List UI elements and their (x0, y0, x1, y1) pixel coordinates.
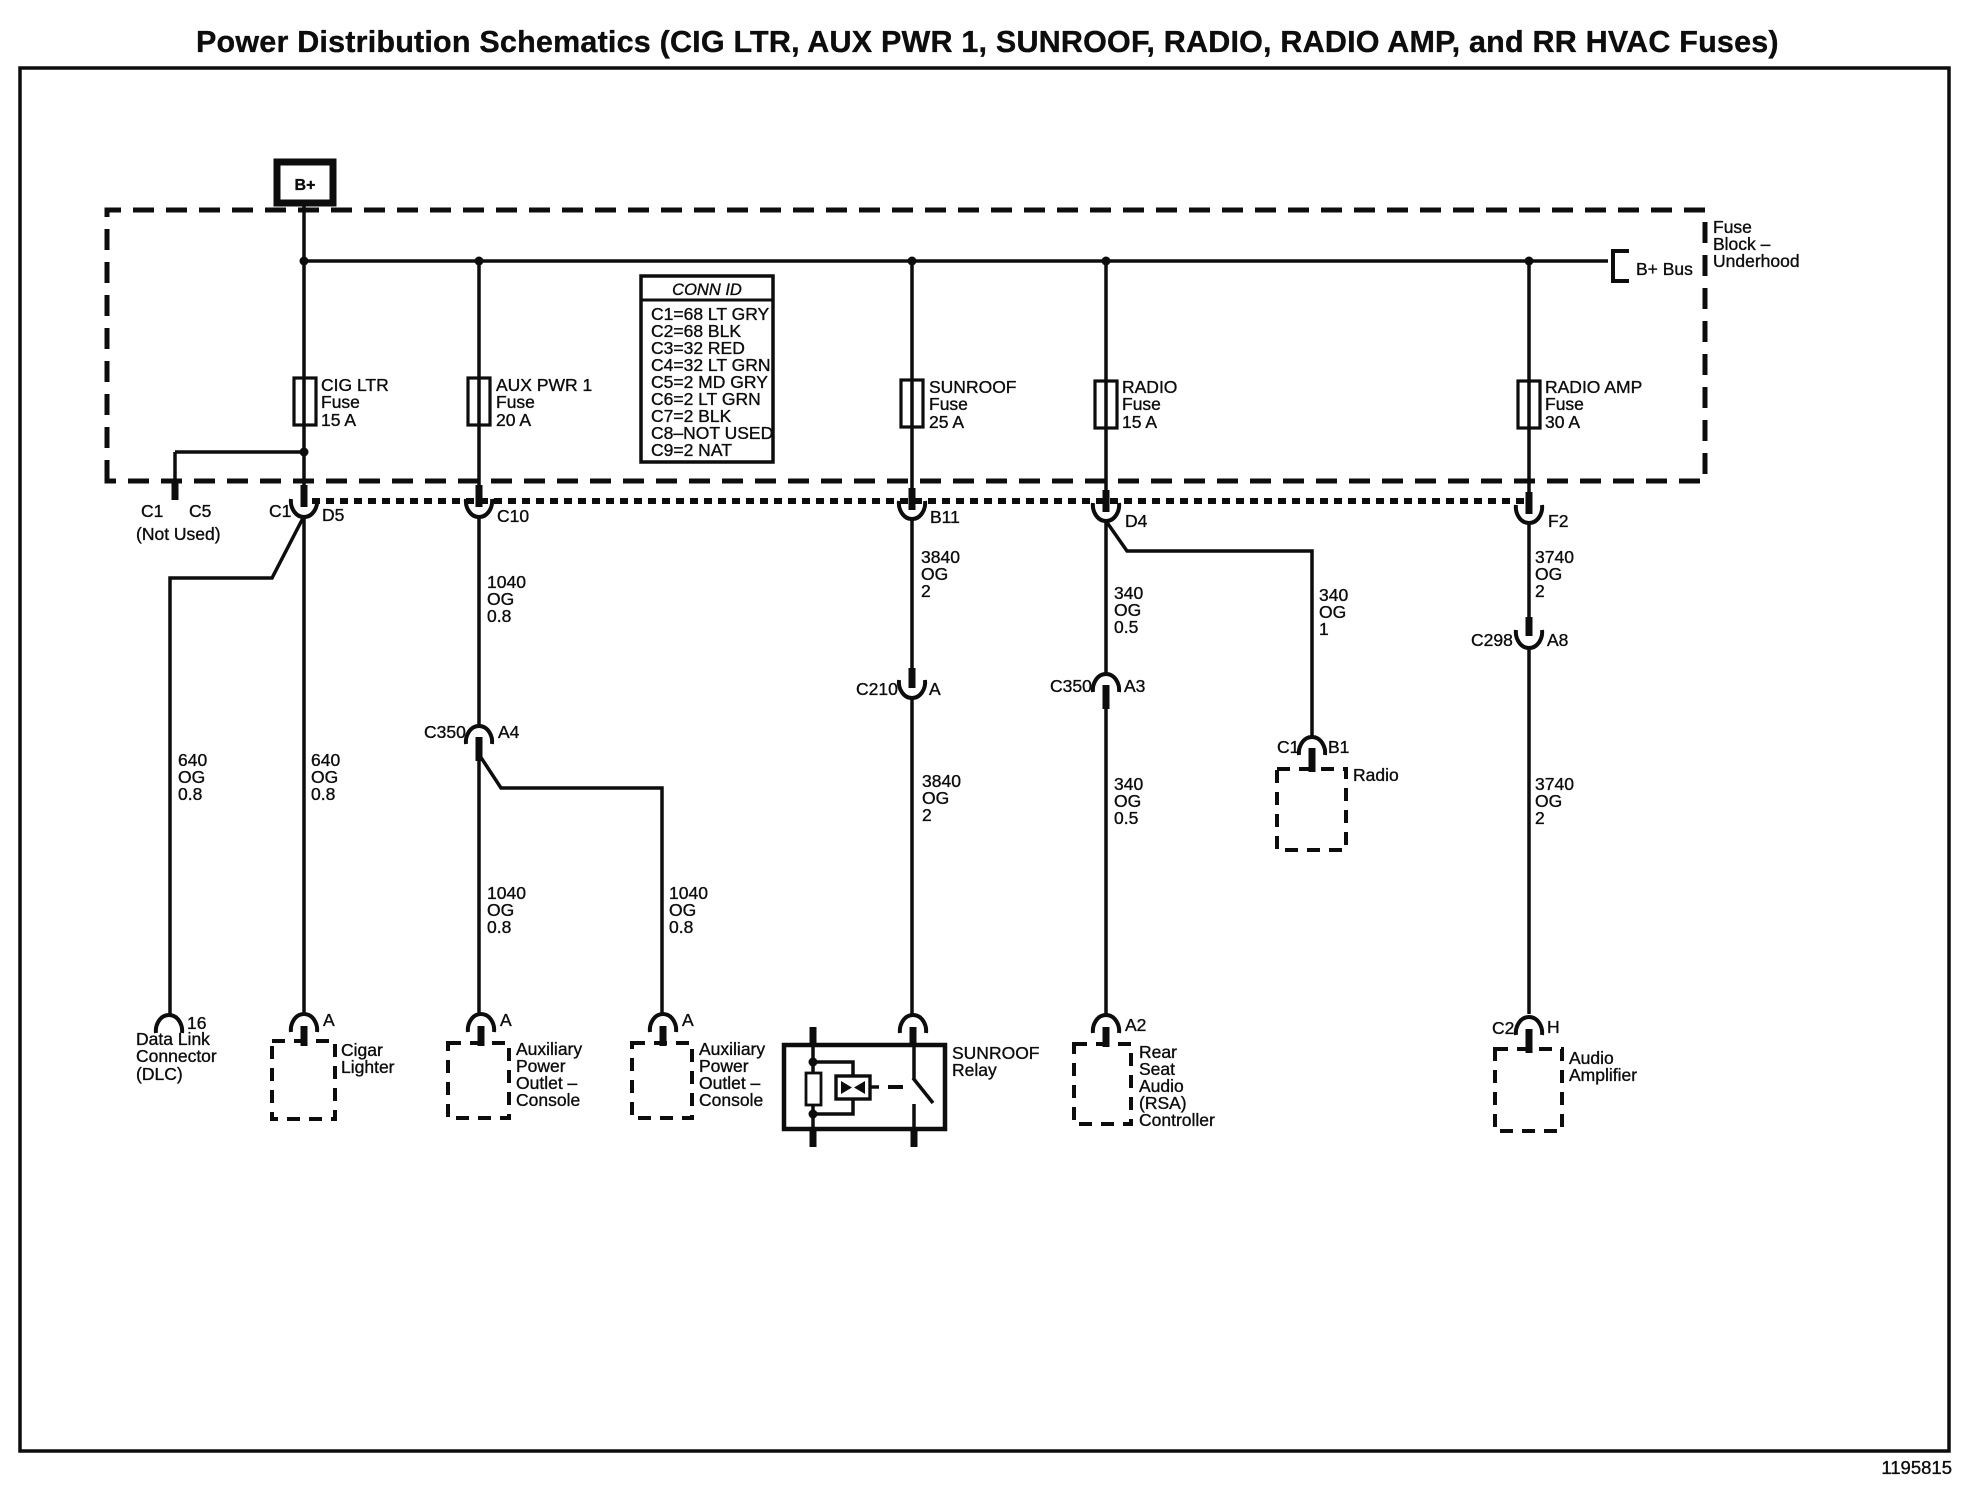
svg-text:1: 1 (1319, 619, 1329, 639)
svg-text:2: 2 (922, 805, 932, 825)
svg-text:B11: B11 (930, 507, 960, 527)
svg-text:A: A (682, 1010, 694, 1030)
svg-text:C298: C298 (1471, 630, 1513, 650)
svg-text:C1: C1 (1277, 737, 1299, 757)
svg-text:H: H (1547, 1017, 1560, 1037)
svg-text:Underhood: Underhood (1713, 251, 1800, 271)
svg-text:15 A: 15 A (1122, 412, 1157, 432)
svg-text:20 A: 20 A (496, 410, 531, 430)
svg-text:Console: Console (699, 1090, 763, 1110)
svg-text:0.8: 0.8 (669, 917, 693, 937)
svg-text:Fuse: Fuse (929, 394, 968, 414)
svg-text:F2: F2 (1548, 511, 1568, 531)
svg-text:D5: D5 (322, 505, 344, 525)
svg-text:A3: A3 (1124, 676, 1145, 696)
svg-text:A4: A4 (498, 722, 520, 742)
svg-text:25 A: 25 A (929, 412, 964, 432)
svg-text:1195815: 1195815 (1881, 1457, 1952, 1478)
svg-text:B1: B1 (1328, 737, 1349, 757)
svg-text:0.8: 0.8 (178, 784, 202, 804)
svg-text:A8: A8 (1547, 630, 1568, 650)
svg-text:(DLC): (DLC) (136, 1064, 183, 1084)
svg-text:0.5: 0.5 (1114, 808, 1138, 828)
svg-text:C2: C2 (1492, 1018, 1514, 1038)
svg-text:Fuse: Fuse (1122, 394, 1161, 414)
svg-text:15 A: 15 A (321, 410, 356, 430)
svg-text:Radio: Radio (1353, 765, 1399, 785)
svg-text:2: 2 (1535, 808, 1545, 828)
svg-text:A: A (929, 679, 941, 699)
svg-text:Controller: Controller (1139, 1110, 1215, 1130)
svg-text:A2: A2 (1125, 1015, 1146, 1035)
svg-text:C350: C350 (1050, 676, 1092, 696)
svg-text:Fuse: Fuse (496, 392, 535, 412)
svg-text:Power Distribution Schematics: Power Distribution Schematics (CIG LTR, … (196, 25, 1779, 59)
svg-text:30 A: 30 A (1545, 412, 1580, 432)
svg-text:0.8: 0.8 (311, 784, 335, 804)
svg-text:C210: C210 (856, 679, 898, 699)
svg-text:C10: C10 (497, 506, 529, 526)
svg-text:C5: C5 (189, 501, 211, 521)
svg-text:A: A (500, 1010, 512, 1030)
svg-text:2: 2 (1535, 581, 1545, 601)
svg-text:C9=2 NAT: C9=2 NAT (651, 440, 732, 460)
svg-text:C1: C1 (141, 501, 163, 521)
svg-text:Console: Console (516, 1090, 580, 1110)
svg-text:B+ Bus: B+ Bus (1636, 259, 1693, 279)
svg-text:C1: C1 (269, 501, 291, 521)
svg-text:Amplifier: Amplifier (1569, 1065, 1637, 1085)
svg-text:CONN ID: CONN ID (672, 281, 742, 299)
svg-text:Connector: Connector (136, 1046, 217, 1066)
svg-text:D4: D4 (1125, 511, 1148, 531)
svg-text:0.8: 0.8 (487, 917, 511, 937)
svg-text:0.5: 0.5 (1114, 617, 1138, 637)
svg-text:Lighter: Lighter (341, 1057, 395, 1077)
svg-text:Fuse: Fuse (321, 392, 360, 412)
svg-text:0.8: 0.8 (487, 606, 511, 626)
svg-text:(Not Used): (Not Used) (136, 524, 221, 544)
svg-text:A: A (323, 1010, 335, 1030)
svg-text:Relay: Relay (952, 1060, 997, 1080)
svg-text:C350: C350 (424, 722, 466, 742)
svg-text:B+: B+ (295, 177, 316, 194)
svg-text:2: 2 (921, 581, 931, 601)
svg-text:Fuse: Fuse (1545, 394, 1584, 414)
